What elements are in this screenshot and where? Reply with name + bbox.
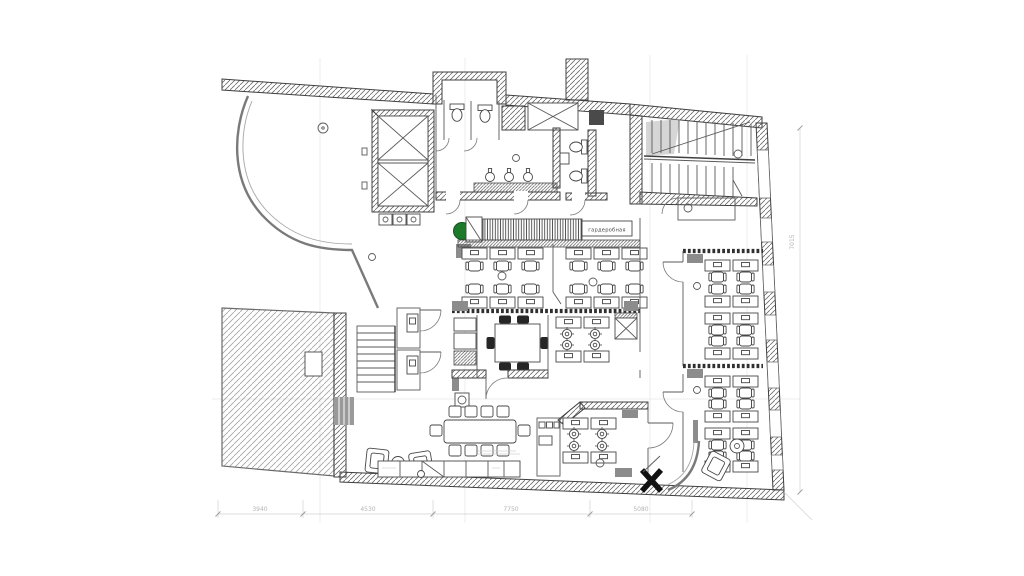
toilet-icon — [478, 105, 492, 122]
dim-label: 3940 — [252, 506, 267, 513]
copier-icon — [615, 313, 637, 339]
dim-label: 7750 — [503, 506, 518, 513]
office-south-middle — [548, 313, 640, 378]
fixture-markers — [318, 123, 376, 261]
elevator-shaft — [362, 110, 434, 225]
dim-label: 5080 — [633, 506, 648, 513]
radiator — [334, 397, 354, 425]
angled-office — [558, 402, 673, 478]
long-table-area — [430, 406, 530, 456]
floor-plan-canvas: гардеробная — [0, 0, 1024, 576]
stair-treads-lower — [652, 163, 733, 197]
toilet-icon — [570, 169, 587, 183]
wardrobe-label: гардеробная — [588, 228, 626, 234]
vent-shaft — [528, 103, 578, 130]
dim-label-vertical: 7015 — [789, 234, 796, 249]
shaft-vent-boxes — [379, 214, 420, 225]
main-staircase — [630, 115, 757, 220]
open-office-left — [462, 248, 543, 308]
office-room-a — [663, 251, 763, 366]
sink-icon — [505, 169, 514, 182]
meeting-table — [495, 324, 540, 362]
floor-plan-page: гардеробная — [0, 0, 1024, 576]
urinal-icon — [560, 153, 569, 164]
sink-counter — [474, 169, 557, 193]
storage-closet — [537, 418, 560, 476]
sink-icon — [524, 169, 533, 182]
dim-label: 4530 — [360, 506, 375, 513]
sink-icon — [486, 169, 495, 182]
duct-shaft — [589, 110, 604, 125]
pantry — [452, 315, 477, 407]
lockers — [483, 219, 582, 240]
left-wall — [334, 313, 354, 477]
secondary-staircase — [357, 326, 395, 392]
toilet-icon — [450, 104, 464, 121]
armchair-icon — [701, 450, 732, 482]
wc-block — [436, 95, 607, 215]
curved-boundary-wall — [237, 96, 378, 308]
long-table — [444, 420, 516, 443]
phone-booths — [397, 308, 441, 390]
side-table — [730, 439, 744, 453]
open-office-middle — [553, 244, 647, 308]
adjacent-building-block — [222, 308, 334, 476]
toilet-icon — [570, 140, 587, 154]
low-cabinets — [378, 461, 520, 478]
